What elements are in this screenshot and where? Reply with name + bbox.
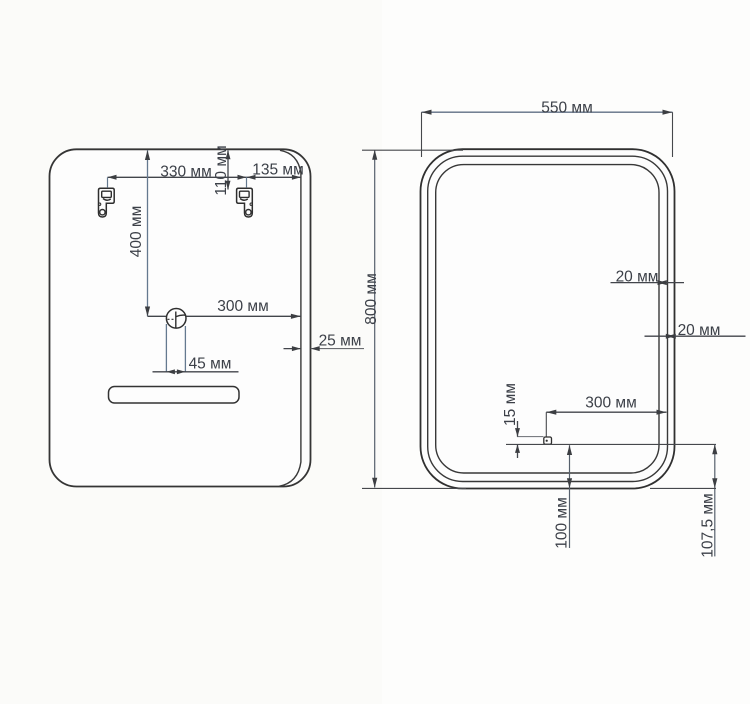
- svg-text:330 мм: 330 мм: [160, 163, 211, 180]
- svg-text:15 мм: 15 мм: [502, 383, 519, 426]
- svg-text:100 мм: 100 мм: [554, 497, 571, 548]
- svg-text:45 мм: 45 мм: [189, 356, 232, 373]
- svg-text:550 мм: 550 мм: [541, 99, 592, 116]
- svg-text:20 мм: 20 мм: [678, 322, 721, 339]
- svg-text:110 мм: 110 мм: [213, 145, 230, 195]
- svg-text:300 мм: 300 мм: [217, 298, 268, 315]
- svg-text:135 мм: 135 мм: [252, 161, 303, 178]
- svg-text:300 мм: 300 мм: [585, 395, 636, 412]
- svg-text:20 мм: 20 мм: [616, 269, 659, 286]
- svg-text:107,5 мм: 107,5 мм: [700, 493, 717, 557]
- svg-text:25 мм: 25 мм: [319, 332, 362, 349]
- svg-text:800 мм: 800 мм: [363, 273, 380, 324]
- svg-text:400 мм: 400 мм: [128, 206, 145, 257]
